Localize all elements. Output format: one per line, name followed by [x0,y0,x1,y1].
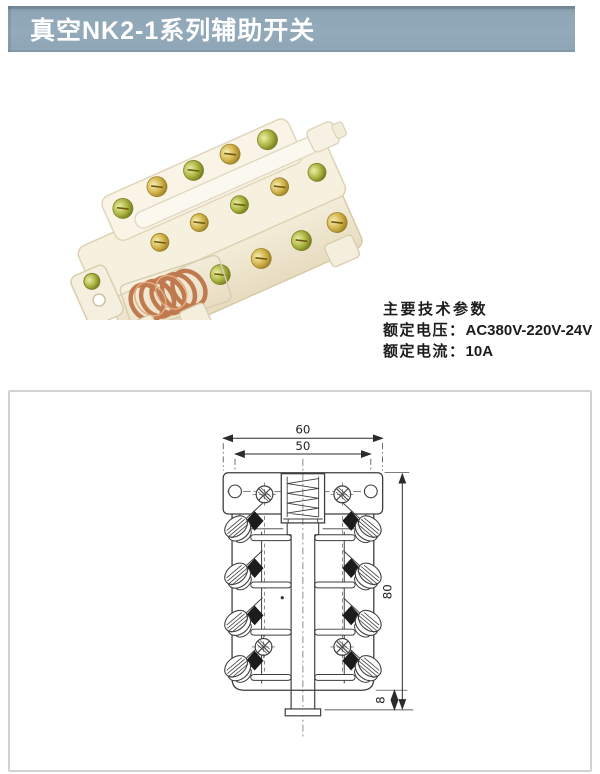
spec-label: 额定电压： [383,322,466,339]
dim-label-80: 80 [381,584,395,599]
spec-value: 10A [466,343,494,360]
dimension-drawing: 60 50 [10,392,586,766]
dim-label-8: 8 [374,696,388,704]
title-banner: 真空NK2-1系列辅助开关 [8,6,575,52]
spec-rated-current: 额定电流：10A [383,341,597,362]
dim-label-60: 60 [295,422,310,436]
page-title: 真空NK2-1系列辅助开关 [8,11,315,47]
specs-heading: 主要技术参数 [383,299,597,320]
product-photo-image [58,62,380,320]
technical-specs: 主要技术参数 额定电压：AC380V-220V-24V 额定电流：10A [383,299,597,362]
spec-value: AC380V-220V-24V [466,322,593,339]
mounting-hole-icon [364,485,377,498]
spec-label: 额定电流： [383,343,466,360]
reference-dot [281,596,284,599]
product-photo [58,62,380,320]
dimension-drawing-panel: 60 50 [8,390,592,772]
shaft-foot [285,709,320,716]
dim-label-50: 50 [295,439,310,453]
terminals-left [221,503,264,688]
mounting-hole-icon [229,485,242,498]
terminals-right [342,503,385,688]
spec-rated-voltage: 额定电压：AC380V-220V-24V [383,320,597,341]
